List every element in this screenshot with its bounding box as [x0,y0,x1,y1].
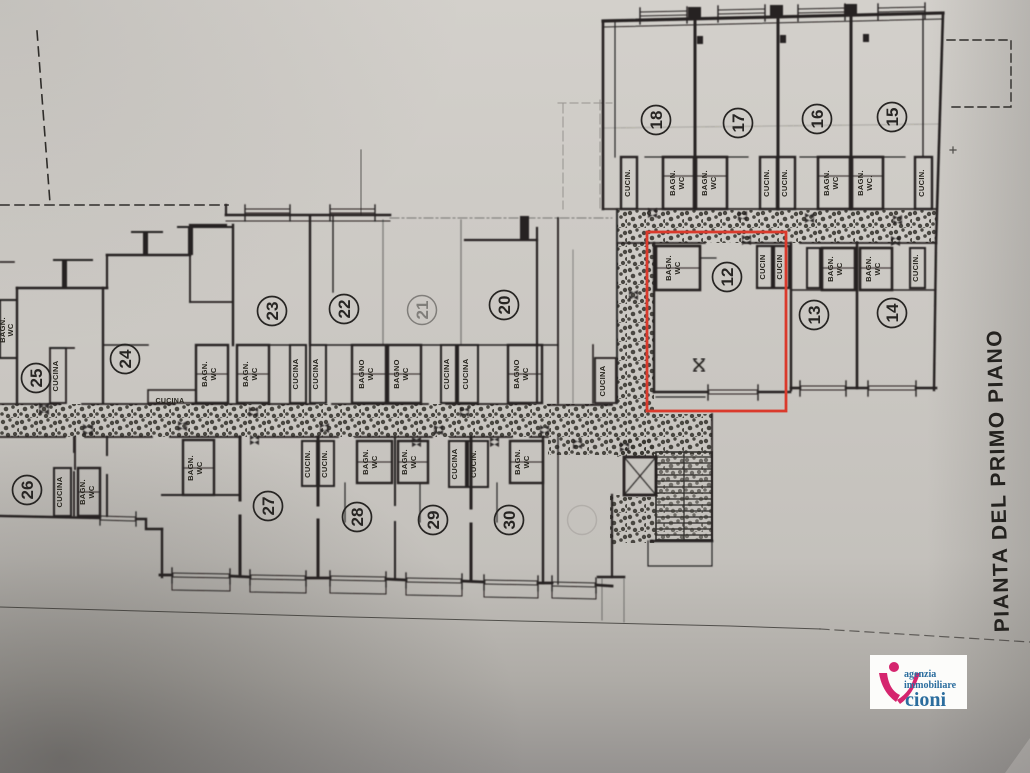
svg-text:BAGN.: BAGN. [361,449,370,475]
svg-text:CUCIN.: CUCIN. [303,450,312,478]
svg-text:15: 15 [883,108,902,127]
svg-text:CUCINA: CUCINA [598,365,607,396]
svg-text:WC: WC [709,176,718,189]
svg-text:WC: WC [873,262,882,275]
svg-text:22: 22 [335,300,354,319]
svg-text:WC: WC [522,455,531,468]
svg-text:27: 27 [259,497,278,516]
svg-text:BAGN.: BAGN. [822,170,831,196]
svg-text:BAGNO: BAGNO [392,359,401,388]
svg-text:CUCIN.: CUCIN. [469,450,478,478]
svg-text:26: 26 [18,481,37,500]
svg-text:CUCINA: CUCINA [51,360,60,391]
svg-text:21: 21 [413,301,432,320]
svg-text:agenzia: agenzia [904,669,936,680]
svg-text:BAGN.: BAGN. [200,361,209,387]
svg-text:BAGN.: BAGN. [826,256,835,282]
svg-text:WC: WC [521,367,530,380]
svg-text:CUCIN.: CUCIN. [762,169,771,197]
svg-text:WC: WC [835,262,844,275]
svg-text:BAGN.: BAGN. [700,170,709,196]
svg-text:CUCINA: CUCINA [311,358,320,389]
svg-text:18: 18 [647,111,666,130]
svg-text:WC: WC [195,461,204,474]
svg-text:CUCIN: CUCIN [775,254,784,279]
svg-text:cioni: cioni [905,689,947,711]
svg-text:14: 14 [883,303,902,322]
svg-text:WC: WC [673,261,682,274]
svg-text:25: 25 [27,369,46,388]
svg-text:13: 13 [805,306,824,325]
svg-text:CUCIN: CUCIN [758,254,767,279]
svg-text:28: 28 [348,508,367,527]
svg-text:CUCINA: CUCINA [450,448,459,479]
svg-text:BAGNO: BAGNO [512,359,521,388]
svg-text:CUCIN.: CUCIN. [917,169,926,197]
svg-text:24: 24 [116,349,135,368]
svg-text:23: 23 [263,302,282,321]
svg-text:30: 30 [500,511,519,530]
svg-text:17: 17 [729,114,748,133]
svg-text:BAGN.: BAGN. [241,361,250,387]
svg-text:CUCINA: CUCINA [461,358,470,389]
svg-text:BAGN.: BAGN. [864,256,873,282]
svg-text:CUCINA: CUCINA [155,398,184,405]
svg-text:BAGN.: BAGN. [668,170,677,196]
svg-text:CUCIN.: CUCIN. [623,169,632,197]
svg-text:BAGN.: BAGN. [856,170,865,196]
svg-text:BAGNO: BAGNO [357,359,366,388]
svg-text:WC: WC [831,176,840,189]
svg-text:BAGN.: BAGN. [78,479,87,505]
svg-text:CUCIN.: CUCIN. [911,254,920,282]
svg-text:CUCINA: CUCINA [442,358,451,389]
svg-text:WC: WC [366,367,375,380]
svg-text:16: 16 [808,110,827,129]
svg-text:BAGN.: BAGN. [513,449,522,475]
svg-text:WC: WC [209,367,218,380]
svg-text:CUCIN.: CUCIN. [780,169,789,197]
svg-text:BAGN.: BAGN. [186,455,195,481]
svg-text:WC: WC [370,455,379,468]
svg-text:CUCINA: CUCINA [55,476,64,507]
svg-text:WC: WC [409,455,418,468]
svg-text:CUCIN.: CUCIN. [320,450,329,478]
svg-text:12: 12 [718,268,737,287]
svg-text:BAGN.: BAGN. [664,255,673,281]
svg-text:29: 29 [424,511,443,530]
svg-text:WC: WC [6,323,15,336]
svg-text:WC: WC [677,176,686,189]
svg-text:WC.: WC. [865,175,874,190]
svg-text:BAGN.: BAGN. [400,449,409,475]
svg-text:WC: WC [87,485,96,498]
svg-text:20: 20 [495,296,514,315]
svg-text:CUCINA: CUCINA [291,358,300,389]
svg-text:WC: WC [250,367,259,380]
svg-text:WC: WC [401,367,410,380]
